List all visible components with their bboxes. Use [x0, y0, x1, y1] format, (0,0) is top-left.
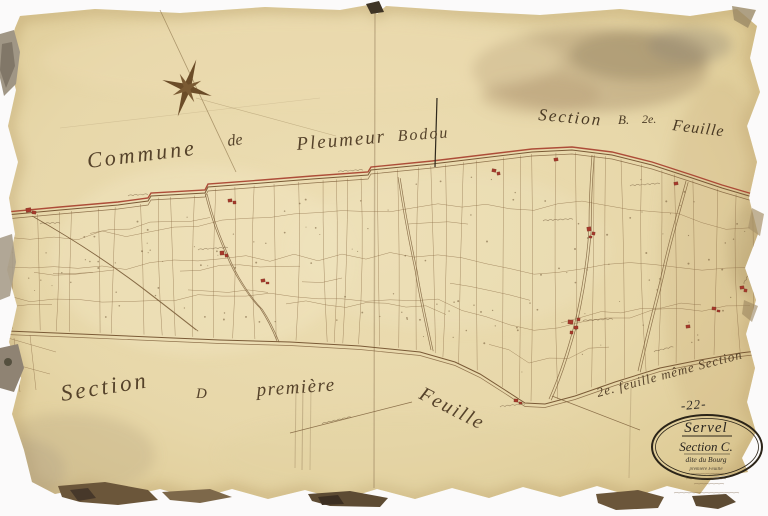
parcel-number-mark: [600, 345, 601, 346]
parcel-number-mark: [544, 200, 546, 202]
parcel-number-mark: [357, 251, 358, 252]
parcel-number-mark: [575, 282, 577, 284]
parcel-number-mark: [34, 290, 35, 291]
parcel-number-mark: [640, 179, 641, 180]
torn-edge-fragment: [692, 494, 736, 509]
parcel-number-mark: [708, 259, 710, 261]
parcel-number-mark: [680, 205, 681, 206]
parcel-number-mark: [253, 241, 254, 242]
parcel-number-mark: [216, 250, 218, 252]
parcel-number-mark: [649, 279, 650, 280]
parcel-number-mark: [352, 249, 353, 250]
parcel-number-mark: [141, 250, 143, 252]
parcel-number-mark: [13, 299, 15, 301]
parcel-number-mark: [310, 262, 312, 264]
section-b-label-word: 2e.: [642, 112, 656, 126]
parcel-number-mark: [259, 321, 261, 323]
parcel-number-mark: [619, 301, 620, 302]
hamlet-building: [266, 282, 269, 284]
parcel-number-mark: [584, 313, 585, 314]
parcel-number-mark: [407, 318, 408, 319]
parcel-number-mark: [697, 334, 698, 335]
parcel-number-mark: [721, 269, 723, 271]
parcel-number-mark: [566, 272, 567, 273]
hamlet-building: [220, 251, 224, 255]
hamlet-building: [717, 310, 720, 312]
parcel-number-mark: [187, 217, 188, 218]
parcel-number-mark: [495, 325, 496, 326]
parcel-number-mark: [155, 295, 156, 296]
hamlet-building: [228, 199, 232, 202]
parcel-number-mark: [200, 264, 202, 266]
hamlet-building: [674, 182, 678, 186]
parcel-number-mark: [105, 316, 107, 318]
parcel-number-mark: [453, 337, 454, 338]
commune-title-word: de: [226, 131, 243, 150]
parcel-number-mark: [606, 234, 608, 236]
parcel-number-mark: [284, 232, 286, 234]
parcel-number-mark: [28, 277, 29, 278]
parcel-number-mark: [582, 354, 583, 355]
parcel-number-mark: [457, 300, 459, 302]
parcel-number-mark: [744, 231, 745, 232]
hamlet-building: [686, 325, 690, 328]
parcel-number-mark: [97, 261, 99, 263]
parcel-number-mark: [148, 252, 149, 253]
parcel-number-mark: [471, 177, 472, 178]
hamlet-building: [712, 307, 716, 310]
parcel-number-mark: [698, 339, 700, 341]
parcel-number-mark: [336, 319, 337, 320]
parcel-number-mark: [194, 246, 195, 247]
parcel-number-mark: [405, 255, 407, 257]
parcel-number-mark: [730, 297, 731, 298]
parcel-number-mark: [629, 217, 631, 219]
parcel-number-mark: [184, 307, 185, 308]
parcel-number-mark: [265, 243, 266, 244]
parcel-number-mark: [521, 371, 522, 372]
parcel-number-mark: [401, 312, 402, 313]
parcel-number-mark: [425, 260, 427, 262]
parcel-number-mark: [115, 262, 116, 263]
parcel-number-mark: [40, 279, 41, 280]
parcel-number-mark: [344, 296, 346, 298]
parcel-number-mark: [725, 242, 726, 243]
parcel-number-mark: [608, 264, 609, 265]
parcel-number-mark: [537, 309, 539, 311]
hamlet-building: [497, 172, 500, 175]
parcel-number-mark: [233, 233, 234, 234]
section-b-label-word: B.: [618, 112, 629, 127]
parcel-number-mark: [517, 329, 519, 331]
hamlet-building: [554, 158, 558, 162]
parcel-number-mark: [45, 252, 46, 253]
parcel-number-mark: [419, 319, 421, 321]
hamlet-building: [744, 289, 747, 292]
cartouche-title: Servel: [684, 420, 727, 436]
torn-edge-fragment: [4, 358, 12, 366]
parcel-number-mark: [448, 310, 449, 311]
parcel-number-mark: [483, 342, 485, 344]
cartouche-section: Section C.: [679, 439, 732, 454]
parcel-number-mark: [204, 316, 206, 318]
sheet-number: -22-: [680, 396, 707, 413]
parcel-number-mark: [529, 302, 530, 303]
parcel-number-mark: [379, 316, 380, 317]
parcel-number-mark: [224, 312, 225, 313]
parcel-number-mark: [393, 293, 394, 294]
parcel-number-mark: [275, 321, 276, 322]
hamlet-building: [225, 254, 228, 257]
scanned-map-page: Commune de Pleumeur Bodou Section B. 2e.…: [0, 0, 768, 516]
hamlet-building: [492, 169, 496, 173]
parcel-number-mark: [436, 304, 437, 305]
hamlet-building: [233, 201, 236, 204]
parcel-number-mark: [245, 316, 247, 318]
parcel-number-mark: [137, 221, 139, 223]
parcel-number-mark: [440, 180, 442, 182]
parcel-number-mark: [473, 304, 474, 305]
parcel-number-mark: [558, 267, 560, 269]
cadastral-map: Commune de Pleumeur Bodou Section B. 2e.…: [0, 0, 768, 516]
hamlet-building: [514, 399, 518, 402]
parcel-number-mark: [423, 336, 424, 337]
hamlet-building: [577, 318, 580, 321]
parcel-number-mark: [299, 203, 301, 205]
parcel-number-mark: [223, 319, 225, 321]
parcel-number-mark: [217, 255, 218, 256]
cartouche-fine-print-line: [694, 484, 724, 485]
hamlet-building: [26, 208, 32, 213]
parcel-number-mark: [388, 210, 389, 211]
hamlet-building: [574, 326, 578, 329]
parcel-number-mark: [578, 223, 580, 225]
parcel-number-mark: [515, 192, 516, 193]
parcel-number-mark: [688, 322, 689, 323]
hamlet-building: [261, 279, 265, 283]
parcel-number-mark: [255, 262, 257, 264]
parcel-number-mark: [207, 265, 208, 266]
parcel-number-mark: [722, 310, 724, 312]
parcel-number-mark: [492, 310, 493, 311]
parcel-number-mark: [470, 214, 471, 215]
parcel-number-mark: [645, 252, 647, 254]
parcel-number-mark: [51, 285, 52, 286]
parcel-number-mark: [157, 287, 159, 289]
hamlet-building: [570, 331, 573, 334]
commune-title-word: Bodou: [397, 124, 450, 145]
parcel-number-mark: [733, 239, 734, 240]
parcel-number-mark: [150, 250, 151, 251]
hamlet-building: [589, 236, 592, 238]
parcel-number-mark: [486, 241, 488, 243]
parcel-number-mark: [89, 261, 91, 263]
parcel-number-mark: [662, 233, 663, 234]
parcel-number-mark: [83, 236, 85, 238]
parcel-number-mark: [688, 235, 689, 236]
parcel-number-mark: [453, 301, 455, 303]
parcel-number-mark: [118, 305, 120, 307]
parcel-number-mark: [491, 179, 492, 180]
parcel-number-mark: [416, 183, 417, 184]
parcel-number-mark: [361, 312, 363, 314]
parcel-number-mark: [665, 200, 667, 202]
parcel-number-mark: [367, 228, 368, 229]
parcel-number-mark: [147, 243, 148, 244]
cartouche-detail: première Feuille: [688, 467, 723, 472]
hamlet-building: [568, 320, 573, 324]
parcel-number-mark: [516, 327, 518, 329]
cartouche-fine-print-line: [674, 493, 739, 494]
parcel-number-mark: [643, 324, 644, 325]
parcel-number-mark: [319, 234, 320, 235]
parcel-number-mark: [736, 223, 738, 225]
parcel-number-mark: [70, 282, 71, 283]
parcel-number-mark: [85, 259, 86, 260]
parcel-number-mark: [688, 263, 690, 265]
hamlet-building: [740, 286, 744, 289]
cartouche-subtitle: dite du Bourg: [686, 455, 727, 464]
parcel-number-mark: [540, 274, 542, 276]
parcel-number-mark: [360, 200, 361, 201]
torn-edge-fragment: [596, 490, 664, 510]
hamlet-building: [592, 232, 595, 235]
parcel-number-mark: [480, 311, 482, 313]
parcel-number-mark: [61, 272, 62, 273]
parcel-number-mark: [670, 213, 671, 214]
parcel-number-mark: [162, 261, 163, 262]
parcel-number-mark: [466, 330, 468, 332]
parcel-number-mark: [115, 291, 116, 292]
parcel-number-mark: [305, 199, 307, 201]
parcel-number-mark: [315, 227, 317, 229]
parcel-number-mark: [305, 227, 306, 228]
section-d-label-word: D: [195, 386, 207, 402]
parcel-number-mark: [693, 201, 694, 202]
parcel-number-mark: [641, 211, 642, 212]
parcel-number-mark: [284, 210, 286, 212]
parcel-number-mark: [147, 229, 149, 231]
parcel-number-mark: [574, 248, 576, 250]
parcel-number-mark: [691, 342, 692, 343]
hamlet-building: [32, 211, 36, 214]
parcel-number-mark: [97, 267, 99, 269]
parcel-number-mark: [512, 199, 514, 201]
hamlet-building: [587, 227, 592, 232]
parcel-number-mark: [93, 236, 95, 238]
